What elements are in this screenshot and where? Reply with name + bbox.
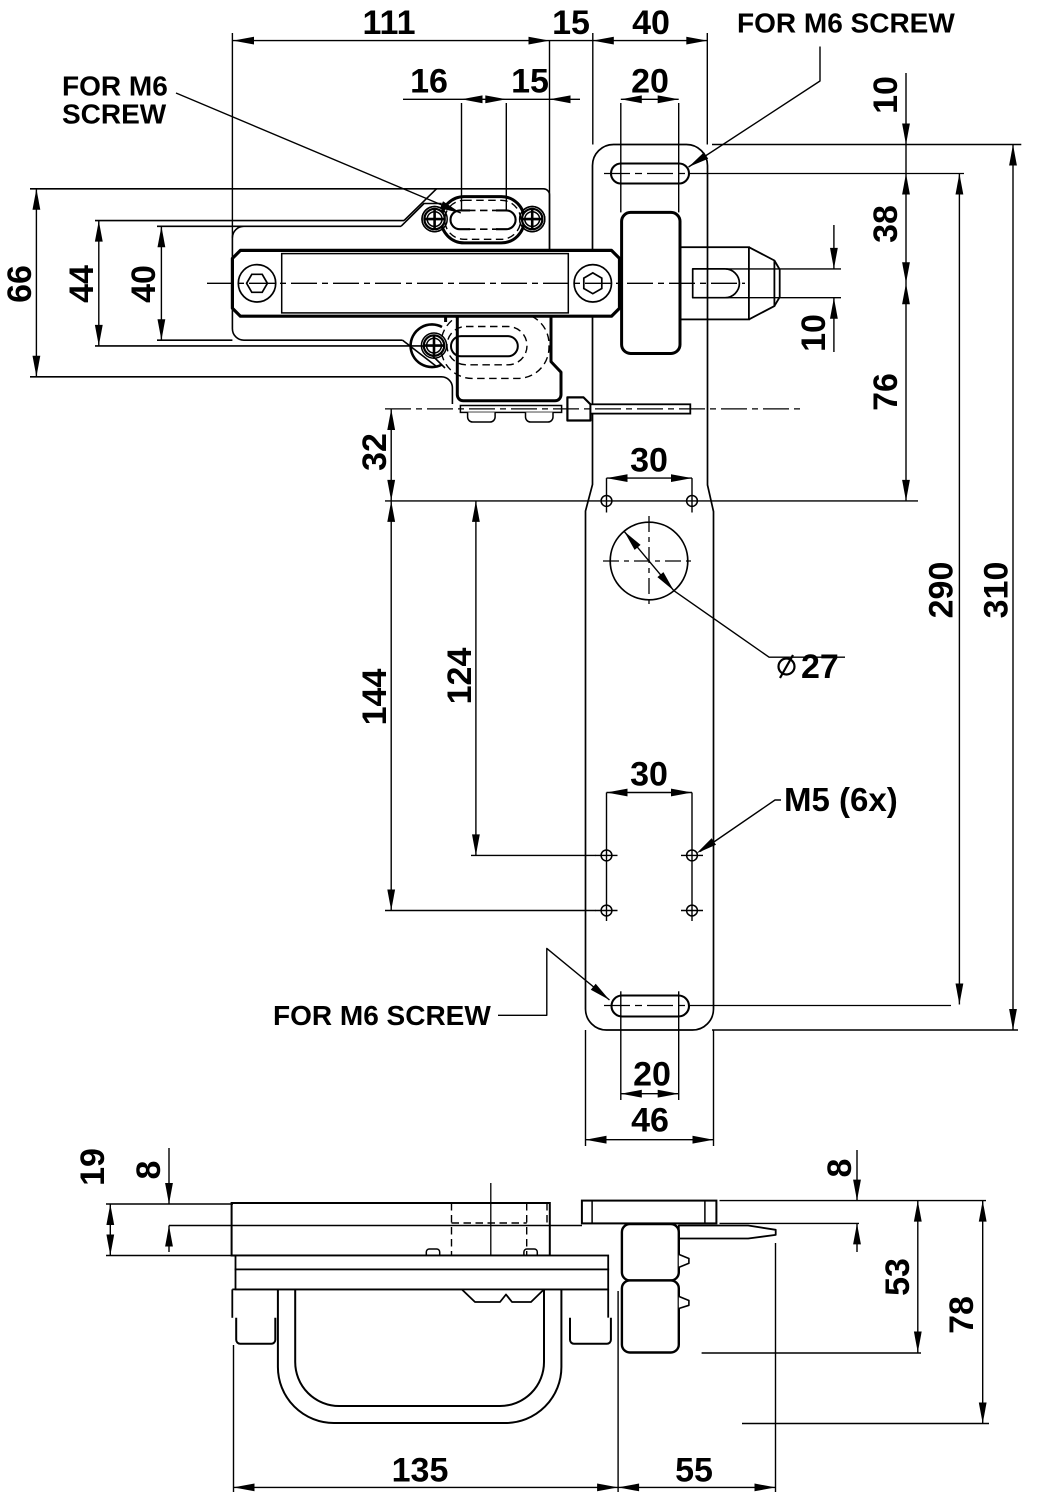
svg-text:46: 46 bbox=[631, 1102, 669, 1140]
svg-text:44: 44 bbox=[63, 265, 101, 303]
svg-text:53: 53 bbox=[879, 1258, 917, 1296]
svg-text:111: 111 bbox=[363, 4, 416, 42]
svg-text:40: 40 bbox=[632, 4, 670, 42]
svg-text:15: 15 bbox=[552, 4, 590, 42]
svg-text:FOR M6: FOR M6 bbox=[62, 71, 168, 102]
svg-text:55: 55 bbox=[675, 1452, 713, 1490]
svg-text:27: 27 bbox=[801, 648, 839, 686]
svg-text:66: 66 bbox=[1, 265, 39, 303]
svg-text:10: 10 bbox=[795, 314, 833, 352]
svg-text:16: 16 bbox=[410, 63, 448, 101]
svg-text:10: 10 bbox=[867, 76, 905, 114]
svg-text:15: 15 bbox=[511, 63, 549, 101]
svg-text:30: 30 bbox=[630, 441, 668, 479]
svg-text:144: 144 bbox=[356, 669, 394, 726]
svg-text:20: 20 bbox=[631, 63, 669, 101]
svg-text:40: 40 bbox=[125, 265, 163, 303]
svg-text:32: 32 bbox=[356, 433, 394, 471]
svg-text:78: 78 bbox=[943, 1296, 981, 1334]
svg-text:290: 290 bbox=[923, 562, 961, 619]
svg-text:76: 76 bbox=[867, 373, 905, 411]
svg-text:19: 19 bbox=[74, 1148, 112, 1186]
svg-text:135: 135 bbox=[392, 1452, 449, 1490]
svg-text:8: 8 bbox=[821, 1159, 859, 1178]
svg-text:124: 124 bbox=[441, 648, 479, 705]
svg-text:FOR M6 SCREW: FOR M6 SCREW bbox=[273, 1000, 491, 1031]
svg-text:FOR M6 SCREW: FOR M6 SCREW bbox=[737, 8, 955, 39]
svg-text:30: 30 bbox=[630, 756, 668, 794]
svg-text:M5 (6x): M5 (6x) bbox=[784, 781, 898, 818]
svg-text:SCREW: SCREW bbox=[62, 99, 167, 130]
svg-text:310: 310 bbox=[977, 562, 1015, 619]
svg-text:38: 38 bbox=[867, 205, 905, 243]
svg-text:20: 20 bbox=[633, 1056, 671, 1094]
svg-text:8: 8 bbox=[130, 1161, 168, 1180]
